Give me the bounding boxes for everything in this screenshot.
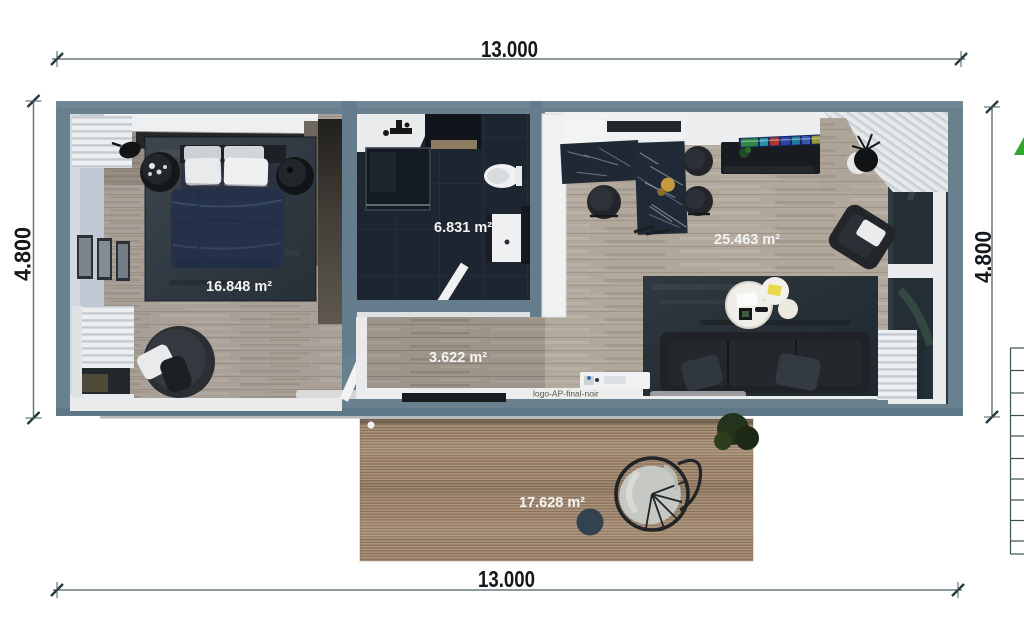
- svg-text:16.848 m²: 16.848 m²: [206, 279, 272, 295]
- svg-text:13.000: 13.000: [481, 36, 538, 62]
- svg-text:4.800: 4.800: [10, 227, 36, 281]
- svg-text:13.000: 13.000: [478, 566, 535, 592]
- svg-text:25.463 m²: 25.463 m²: [714, 232, 780, 248]
- svg-text:logo-AP-final-noir: logo-AP-final-noir: [533, 389, 599, 399]
- svg-text:6.831 m²: 6.831 m²: [434, 220, 492, 236]
- svg-text:3.622 m²: 3.622 m²: [429, 350, 487, 366]
- svg-text:4.800: 4.800: [970, 231, 996, 283]
- svg-text:17.628 m²: 17.628 m²: [519, 495, 585, 511]
